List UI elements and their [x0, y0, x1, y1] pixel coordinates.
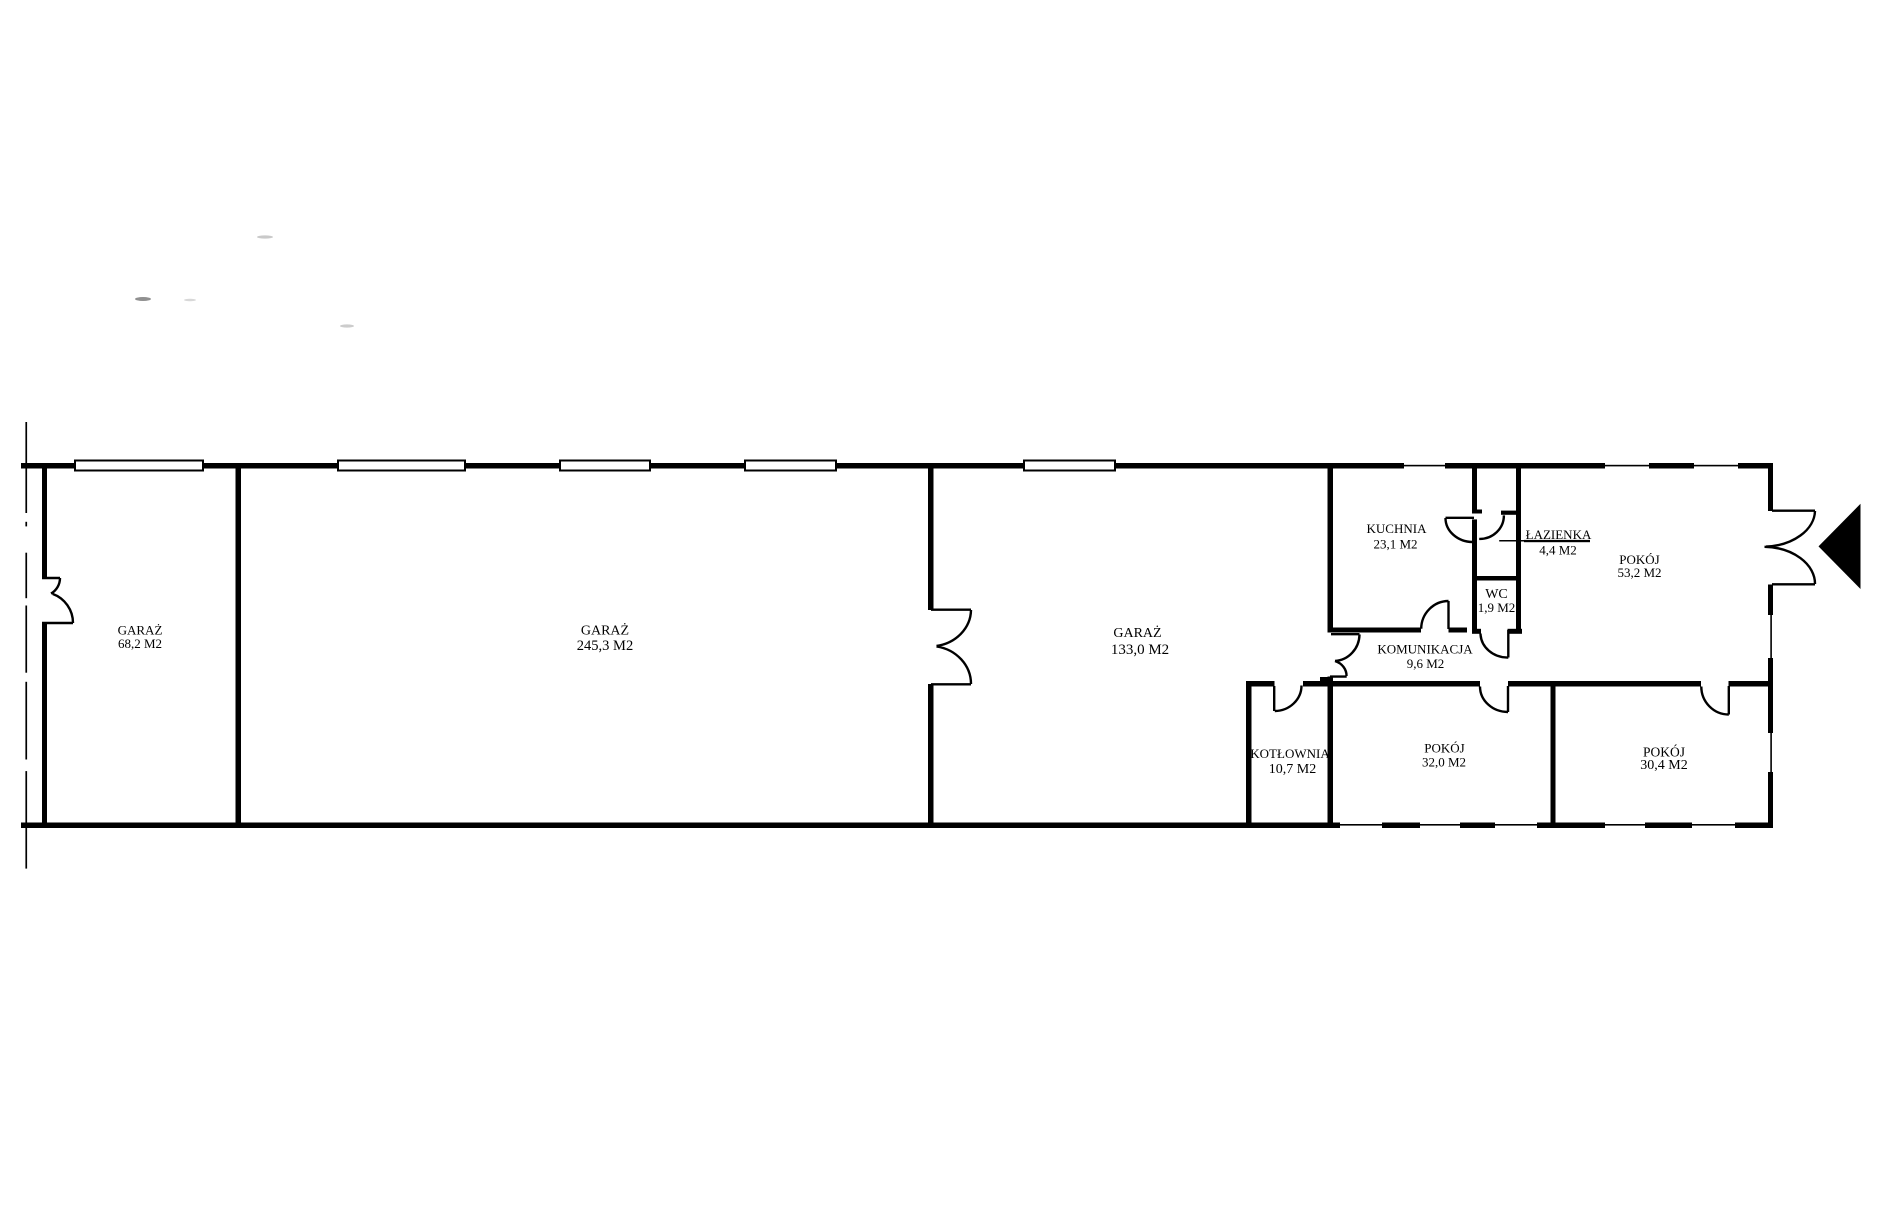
svg-text:ŁAZIENKA: ŁAZIENKA [1526, 527, 1592, 542]
svg-text:4,4 M2: 4,4 M2 [1539, 543, 1577, 558]
svg-text:133,0 M2: 133,0 M2 [1111, 642, 1169, 658]
svg-text:30,4 M2: 30,4 M2 [1640, 758, 1687, 773]
svg-text:68,2 M2: 68,2 M2 [118, 636, 162, 651]
svg-text:KOMUNIKACJA: KOMUNIKACJA [1377, 642, 1473, 657]
svg-text:POKÓJ: POKÓJ [1424, 741, 1464, 756]
svg-text:10,7 M2: 10,7 M2 [1269, 762, 1316, 777]
svg-text:9,6 M2: 9,6 M2 [1407, 656, 1445, 671]
svg-text:GARAŻ: GARAŻ [1113, 625, 1161, 641]
svg-text:KOTŁOWNIA: KOTŁOWNIA [1250, 746, 1330, 761]
svg-text:53,2 M2: 53,2 M2 [1617, 565, 1661, 580]
svg-text:23,1 M2: 23,1 M2 [1373, 537, 1417, 552]
svg-text:245,3 M2: 245,3 M2 [577, 638, 633, 654]
svg-text:KUCHNIA: KUCHNIA [1367, 521, 1428, 536]
svg-text:GARAŻ: GARAŻ [581, 623, 629, 639]
svg-text:32,0 M2: 32,0 M2 [1422, 755, 1466, 770]
svg-text:1,9 M2: 1,9 M2 [1478, 600, 1516, 615]
